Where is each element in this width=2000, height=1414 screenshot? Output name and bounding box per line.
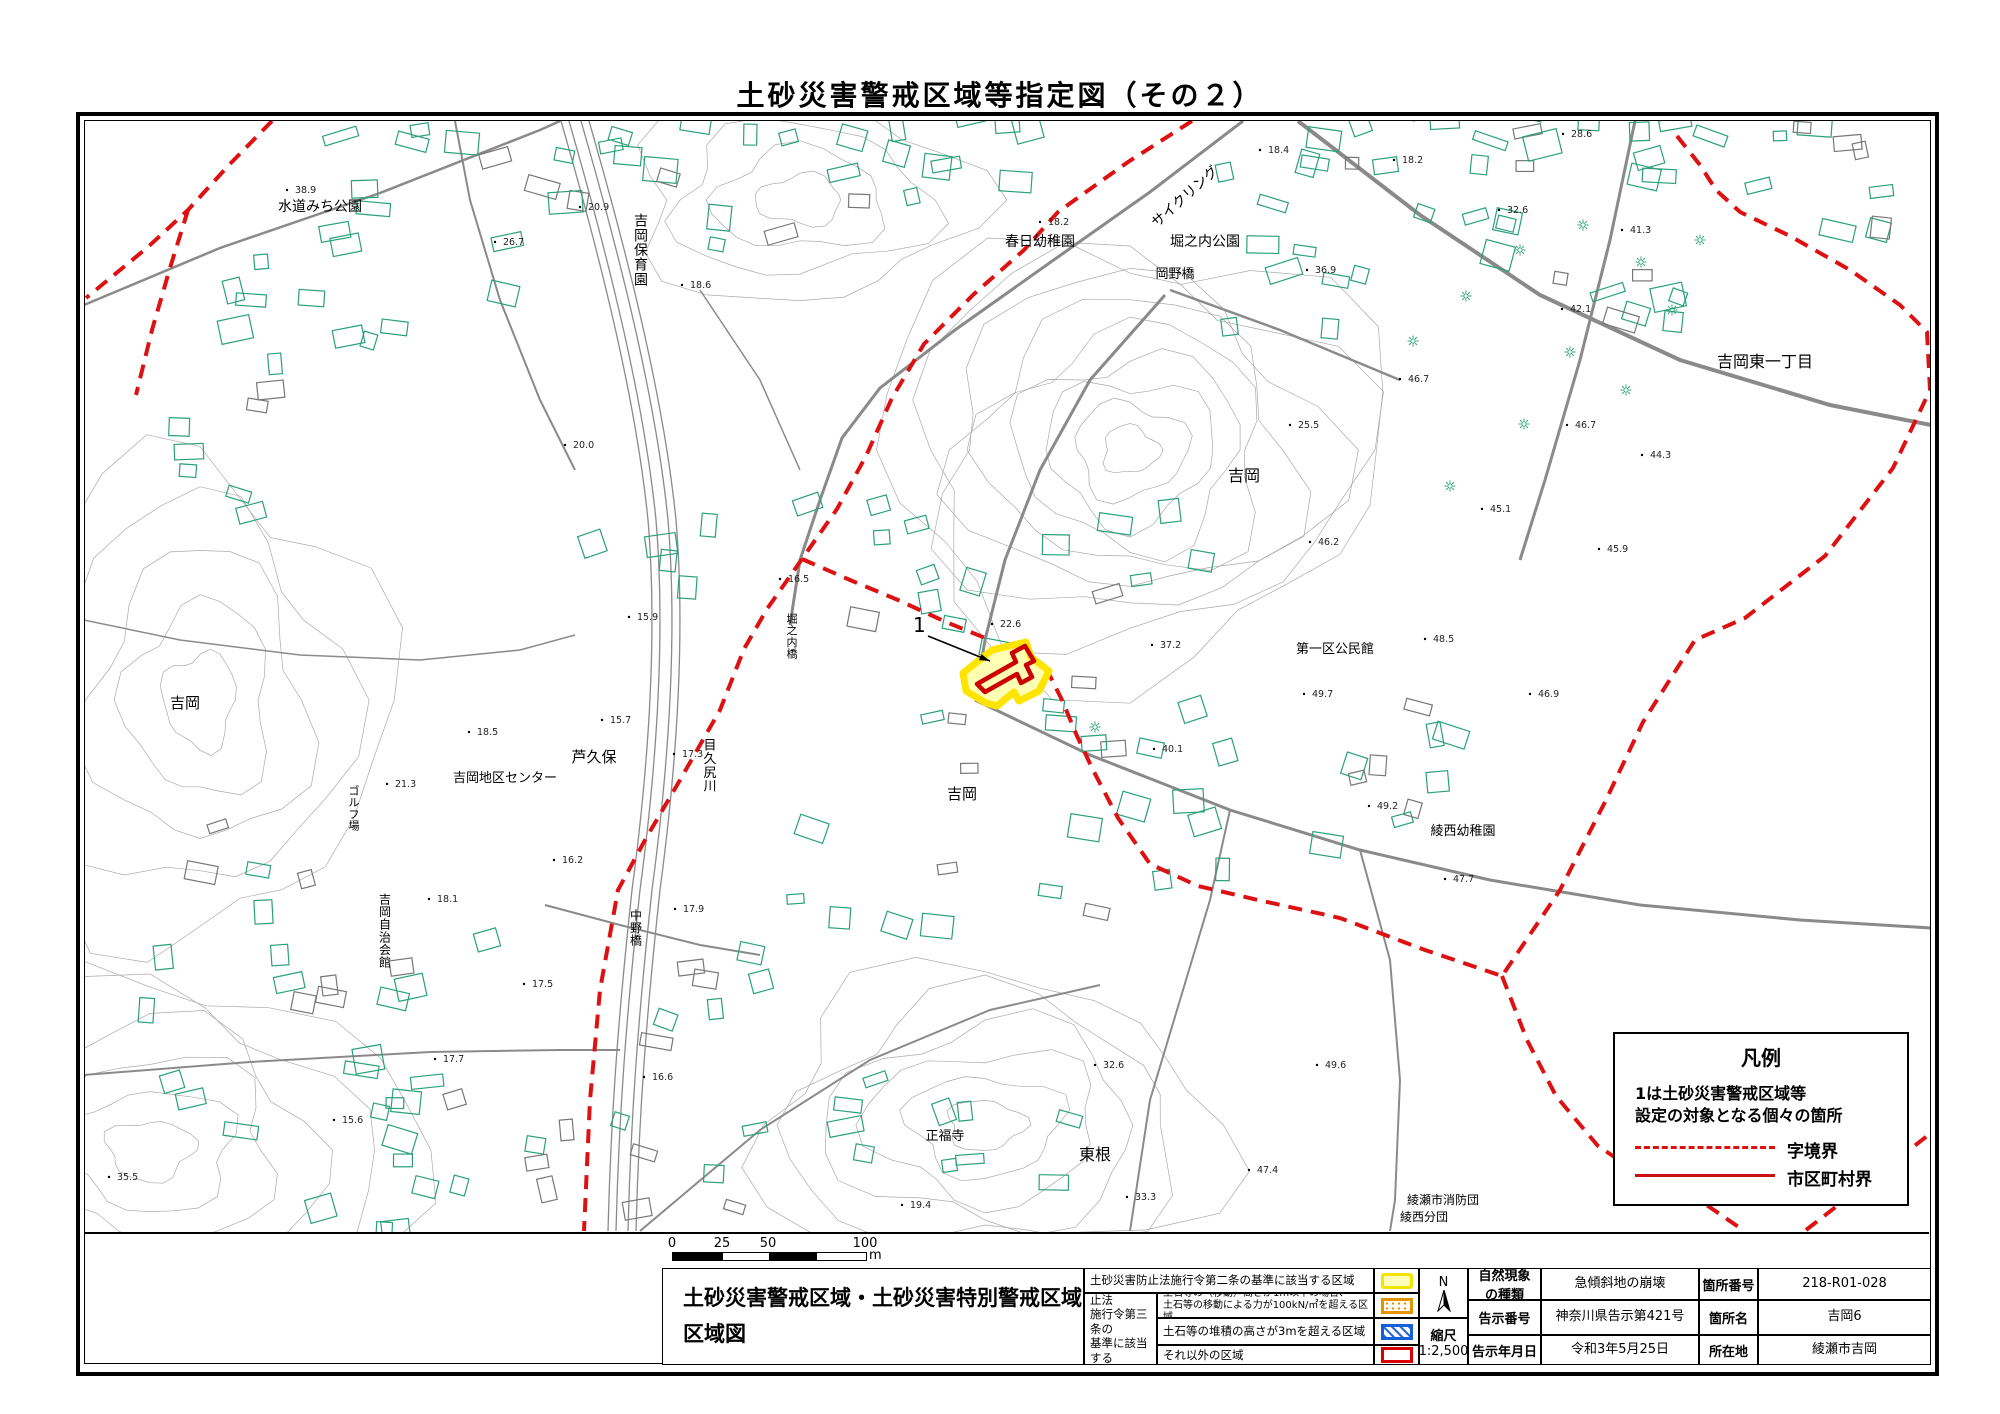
building-outline [1101,740,1127,757]
spot-height-value: 38.9 [295,185,316,196]
building-outline [138,998,154,1023]
building-outline [1351,265,1370,284]
building-outline [883,140,911,168]
building-outline [630,1144,657,1162]
building-outline [1392,812,1414,828]
solid-boundary-sample [1635,1174,1775,1177]
building-outline [956,1154,985,1166]
spot-height-dot [673,753,675,755]
spot-height-value: 18.2 [1048,217,1069,228]
nature-label-cell: 自然現象 の種類 [1468,1268,1541,1300]
map-bottom-border [85,1232,1929,1234]
building-outline [554,148,575,164]
building-outline [829,907,851,930]
sun-symbol-ray [1566,348,1568,350]
spot-height-dot [1094,1064,1096,1066]
place-label: 吉岡地区センター [453,771,557,786]
spot-height-value: 37.2 [1160,640,1181,651]
spot-height-value: 28.6 [1571,129,1592,140]
building-outline [179,464,196,478]
zone-row3-desc: 土石等の堆積の高さが3mを超える区域 [1157,1318,1374,1345]
building-outline [291,992,316,1014]
sun-symbol-icon [1093,725,1097,729]
sun-symbol-icon [1464,294,1468,298]
building-outline [395,131,429,152]
spot-height-dot [681,284,683,286]
sun-symbol-ray [1520,420,1522,422]
zone-row2-desc: 土石等の（移動）高さが1m以下の場合、 土石等の移動による力が100kN/㎡を超… [1157,1293,1374,1318]
sun-symbol-icon [1581,223,1585,227]
swatch-cell-red [1374,1345,1419,1365]
spot-height-dot [333,1119,335,1121]
building-outline [1221,317,1239,336]
sun-symbol-ray [1522,246,1524,248]
building-outline [444,130,479,155]
sun-symbol-ray [1668,312,1670,314]
building-outline [394,1154,413,1167]
building-outline [999,170,1032,193]
spot-height-dot [1289,424,1291,426]
sun-symbol-ray [1468,298,1470,300]
building-outline [1633,270,1653,281]
building-outline [848,194,869,208]
sun-symbol-icon [1624,388,1628,392]
building-outline [391,1089,422,1114]
building-outline [1067,814,1102,842]
place-label: 堀之内橋 [787,613,798,661]
spot-height-value: 47.4 [1257,1165,1278,1176]
zone-row1-desc: 土砂災害防止法施行令第二条の基準に該当する区域 [1084,1268,1374,1293]
contour-line [1046,381,1213,537]
notice-no-value-cell: 神奈川県告示第421号 [1541,1300,1699,1335]
law-line2: 施行令第三条の [1090,1307,1156,1336]
sun-symbol-ray [1097,723,1099,725]
boundary-dashed-line [86,121,272,298]
law-line3: 基準に該当する [1090,1336,1156,1365]
spot-height-value: 42.1 [1570,304,1591,315]
place-label: 吉岡 [170,694,200,712]
building-outline [1627,163,1661,191]
building-outline [1081,735,1107,752]
building-outline [1404,799,1423,818]
spot-height-dot [1424,638,1426,640]
building-outline [524,175,560,200]
sun-symbol-icon [1698,238,1702,242]
building-outline [1083,903,1110,920]
building-outline [1462,208,1488,225]
contour-line [85,1057,277,1232]
place-label: 吉岡 [1228,466,1260,485]
building-outline [382,1125,418,1154]
contour-line [85,551,319,839]
building-outline [330,233,362,257]
spot-height-value: 18.2 [1402,155,1423,166]
sun-symbol-icon [1522,422,1526,426]
swatch-cell-yellow [1374,1268,1419,1293]
spot-height-value: 48.5 [1433,634,1454,645]
building-outline [525,1136,546,1154]
nature-label-l1: 自然現象 [1478,1268,1530,1284]
building-outline [707,204,732,231]
spot-height-value: 49.2 [1377,801,1398,812]
map-title-line1: 土砂災害警戒区域・土砂災害特別警戒区域 [683,1281,1083,1317]
road [1130,810,1230,1231]
sun-symbol-ray [1516,252,1518,254]
building-outline [319,221,351,242]
page-title: 土砂災害警戒区域等指定図（その２） [0,74,2000,114]
building-outline [1347,121,1373,137]
contour-line [756,171,841,227]
spot-height-dot [386,783,388,785]
sun-symbol-ray [1462,292,1464,294]
spot-height-value: 16.6 [652,1072,673,1083]
spot-height-value: 17.3 [682,749,703,760]
building-outline [487,280,520,307]
spot-height-value: 15.6 [342,1115,363,1126]
sun-symbol-ray [1446,488,1448,490]
building-outline [1512,121,1544,122]
spot-height-dot [1039,221,1041,223]
sun-symbol-ray [1702,242,1704,244]
building-outline [1039,1175,1069,1191]
dashed-boundary-sample [1635,1146,1775,1149]
dashed-boundary-label: 字境界 [1787,1137,1838,1162]
spot-height-value: 18.4 [1268,145,1289,156]
zone-row4-desc: それ以外の区域 [1157,1345,1374,1365]
sun-symbol-ray [1097,729,1099,731]
spot-height-dot [1303,693,1305,695]
law-article3-cell: 土砂災害防止法 施行令第三条の 基準に該当する 区域 [1084,1293,1157,1365]
sun-symbol-ray [1452,488,1454,490]
building-outline [381,319,409,336]
spot-height-value: 22.6 [1000,619,1021,630]
building-outline [1852,141,1868,159]
spot-height-value: 18.6 [690,280,711,291]
building-outline [834,1097,863,1113]
site-name-value-cell: 吉岡6 [1758,1300,1931,1335]
building-outline [1513,124,1542,139]
spot-height-value: 20.9 [588,202,609,213]
building-outline [749,969,774,994]
sun-symbol-ray [1468,292,1470,294]
spot-height-dot [1498,209,1500,211]
scale-cell: 縮尺 1:2,500 [1419,1318,1468,1365]
contour-line [742,957,1250,1232]
spot-height-value: 33.3 [1135,1192,1156,1203]
swatch-cell-blue [1374,1318,1419,1345]
spot-height-value: 36.9 [1315,265,1336,276]
spot-height-value: 49.6 [1325,1060,1346,1071]
building-outline [169,418,190,437]
spot-height-value: 15.7 [610,715,631,726]
sun-symbol-ray [1696,242,1698,244]
orange-dotted-swatch [1381,1298,1413,1314]
building-outline [377,987,410,1011]
place-label: サイクリング [1149,163,1222,231]
building-outline [957,1101,972,1121]
contour-line [85,1011,333,1233]
building-outline [537,1176,558,1203]
road [1298,121,1930,425]
place-label: 綾西分団 [1400,1209,1448,1224]
building-outline [1470,155,1488,175]
building-outline [787,894,805,905]
sun-symbol-icon [1411,339,1415,343]
building-outline [322,126,358,146]
sun-symbol-ray [1462,298,1464,300]
place-label: 東根 [1079,1145,1111,1164]
contour-line [825,1009,1133,1232]
building-outline [1429,121,1459,130]
building-outline [692,969,718,989]
spot-height-dot [1368,805,1370,807]
sun-symbol-ray [1585,221,1587,223]
sun-symbol-ray [1526,420,1528,422]
contour-line [85,974,375,1232]
sun-symbol-ray [1091,723,1093,725]
spot-height-dot [1561,308,1563,310]
building-outline [254,900,273,924]
building-outline [1300,155,1329,171]
sun-symbol-ray [1516,246,1518,248]
building-outline [1293,245,1316,258]
building-outline [1793,121,1811,133]
nature-value-cell: 急傾斜地の崩壊 [1541,1268,1699,1300]
hazard-map-document: 土砂災害警戒区域等指定図（その２） 138.920.926.718.618.21… [0,0,2000,1414]
building-outline [707,998,723,1019]
building-outline [837,124,868,152]
place-label: 中野橋 [630,907,642,947]
scalebar-tick-25: 25 [714,1236,731,1251]
building-outline [677,959,704,976]
sun-symbol-ray [1628,392,1630,394]
sun-symbol-icon [1448,484,1452,488]
sun-symbol-ray [1674,312,1676,314]
building-outline [1773,131,1786,141]
building-outline [1797,121,1832,137]
marker-label: 1 [913,613,926,637]
building-outline [268,353,283,375]
building-outline [226,485,252,503]
spot-height-value: 40.1 [1162,744,1183,755]
building-outline [371,1103,390,1120]
building-outline [680,121,712,134]
building-outline [271,944,289,966]
building-outline [708,237,725,252]
building-outline [653,1008,678,1031]
building-outline [1130,573,1152,587]
sun-symbol-ray [1579,221,1581,223]
scale-bar [672,1252,867,1261]
spot-height-dot [523,983,525,985]
spot-height-dot [1529,693,1531,695]
building-outline [316,986,347,1007]
building-outline [932,1098,957,1126]
building-outline [994,121,1020,133]
scalebar-tick-50: 50 [760,1236,777,1251]
sun-symbol-ray [1409,337,1411,339]
sun-symbol-ray [1585,227,1587,229]
nature-label-l2: の種類 [1485,1284,1524,1300]
sun-symbol-ray [1643,264,1645,266]
sun-symbol-ray [1415,337,1417,339]
building-outline [1045,715,1076,732]
sun-symbol-ray [1579,227,1581,229]
spot-height-dot [1444,878,1446,880]
sun-symbol-ray [1622,386,1624,388]
spot-height-dot [1306,269,1308,271]
sun-symbol-ray [1668,306,1670,308]
building-outline [443,1089,466,1110]
building-outline [1247,236,1279,254]
building-outline [376,1222,392,1232]
spot-height-dot [286,189,288,191]
spot-height-value: 44.3 [1650,450,1671,461]
notice-no-label-cell: 告示番号 [1468,1300,1541,1335]
site-no-label-cell: 箇所番号 [1699,1268,1758,1300]
sun-symbol-ray [1522,252,1524,254]
building-outline [1432,721,1469,749]
spot-height-value: 35.5 [117,1172,138,1183]
building-outline [236,293,267,307]
building-outline [1553,271,1568,285]
red-outline-swatch [1381,1347,1413,1363]
spot-height-dot [553,859,555,861]
location-value-cell: 綾瀬市吉岡 [1758,1335,1931,1365]
building-outline [942,1158,958,1172]
building-outline [847,607,879,632]
spot-height-value: 15.9 [637,612,658,623]
building-outline [1321,318,1339,339]
building-outline [394,973,427,1001]
building-outline [1426,771,1449,793]
building-outline [559,1119,574,1141]
building-outline [298,289,325,306]
building-outline [344,1061,380,1079]
contour-line [1103,424,1163,473]
building-outline [1265,257,1303,284]
building-outline [479,147,512,170]
legend-box: 凡例 1は土砂災害警戒区域等 設定の対象となる個々の箇所 字境界 市区町村界 [1613,1032,1909,1206]
spot-height-dot [468,731,470,733]
spot-height-value: 46.7 [1408,374,1429,385]
building-outline [389,958,414,976]
sun-symbol-ray [1696,236,1698,238]
site-no-value-cell: 218-R01-028 [1758,1268,1931,1300]
spot-height-value: 26.7 [503,237,524,248]
spot-height-dot [1259,149,1261,151]
boundary-dashed-line [802,559,990,640]
sun-symbol-ray [1526,426,1528,428]
contour-line [777,975,1173,1232]
spot-height-dot [1481,508,1483,510]
building-outline [217,315,253,345]
sun-symbol-ray [1520,426,1522,428]
notice-date-label-cell: 告示年月日 [1468,1335,1541,1365]
spot-height-dot [643,1076,645,1078]
contour-line [1075,398,1193,504]
building-outline [794,814,829,843]
sun-symbol-ray [1622,392,1624,394]
building-outline [1295,149,1320,177]
spot-height-dot [779,578,781,580]
map-title-line2: 区域図 [683,1317,1083,1353]
building-outline [920,913,954,939]
building-outline [677,576,697,599]
building-outline [1426,722,1444,748]
building-outline [473,928,500,952]
spot-height-dot [428,898,430,900]
spot-height-dot [1309,541,1311,543]
spot-height-value: 46.2 [1318,537,1339,548]
spot-height-value: 45.9 [1607,544,1628,555]
spot-height-value: 17.9 [683,904,704,915]
building-outline [1137,738,1165,758]
spot-height-value: 46.7 [1575,420,1596,431]
spot-height-value: 41.3 [1630,225,1651,236]
building-outline [360,331,378,350]
building-outline [321,975,338,996]
building-outline [1745,177,1772,194]
north-arrow-icon [1437,1290,1451,1312]
building-outline [724,1199,746,1214]
building-outline [779,129,799,146]
spot-height-value: 18.1 [437,894,458,905]
scalebar-tick-0: 0 [668,1236,676,1251]
building-outline [904,188,920,206]
building-outline [1819,218,1856,242]
place-label: 目久尻川 [703,739,716,795]
building-outline [881,911,913,939]
building-outline [1650,282,1687,312]
place-label: 吉岡 [947,785,977,803]
building-outline [1622,301,1651,326]
building-outline [578,529,608,558]
spot-height-value: 25.5 [1298,420,1319,431]
building-outline [257,380,285,400]
spot-height-value: 17.5 [532,979,553,990]
spot-height-dot [1562,133,1564,135]
legend-note-line1: 1は土砂災害警戒区域等 [1635,1080,1806,1104]
building-outline [222,277,245,304]
building-outline [863,1071,888,1088]
building-outline [1603,307,1640,333]
building-outline [916,564,939,585]
building-outline [1178,695,1207,723]
spot-height-value: 20.0 [573,440,594,451]
building-outline [1693,125,1728,147]
boundary-dashed-line [1502,136,1930,976]
place-label: 吉岡自治会館 [379,893,391,970]
building-outline [1158,498,1181,523]
sun-symbol-icon [1639,260,1643,264]
place-label: 芦久保 [571,748,616,766]
legend-title: 凡例 [1615,1042,1907,1071]
place-label: 春日幼稚園 [1005,234,1075,250]
place-label: ゴルフ場 [349,784,360,833]
spot-height-dot [1399,378,1401,380]
sun-symbol-ray [1446,482,1448,484]
sun-symbol-ray [1572,348,1574,350]
building-outline [889,121,906,142]
spot-height-value: 49.7 [1312,689,1333,700]
building-outline [873,530,890,545]
building-outline [921,710,944,724]
spot-height-dot [494,241,496,243]
spot-height-value: 32.6 [1507,205,1528,216]
north-arrow-cell: N [1419,1268,1468,1318]
building-outline [639,1033,673,1051]
